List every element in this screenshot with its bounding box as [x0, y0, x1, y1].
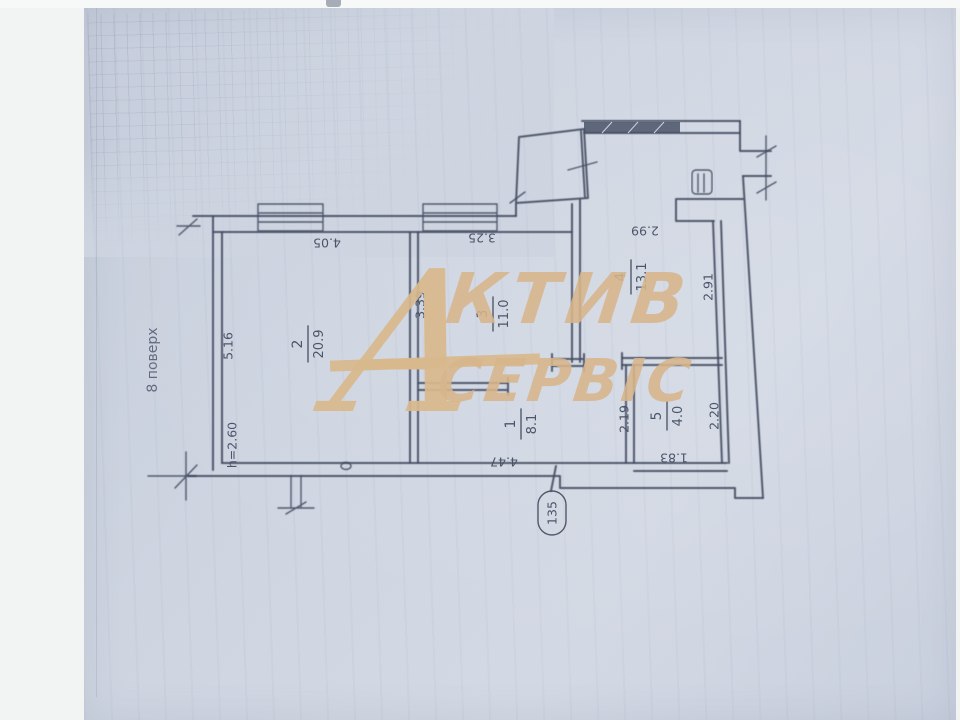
room-1-number: 1: [503, 420, 519, 429]
dim-room5-right: 2.20: [706, 402, 721, 430]
dim-room5-bottom: 1.83: [660, 451, 688, 466]
vent-shaft-icon: [692, 170, 712, 194]
ceiling-height-note: h=2.60: [224, 422, 239, 468]
room-2-label: 2 20.9: [290, 326, 327, 362]
dim-room2-left: 5.16: [220, 332, 235, 360]
room-2-number: 2: [290, 340, 306, 349]
windows-group: [258, 204, 497, 231]
dim-room4-top: 2.99: [631, 224, 659, 239]
hatched-window-band: [584, 122, 680, 133]
watermark-line1: КТИВ: [442, 258, 697, 340]
room-2-area: 20.9: [312, 330, 327, 359]
dim-room1-bottom: 4.47: [490, 455, 518, 470]
apartment-number: 135: [544, 501, 559, 525]
room-1-area: 8.1: [525, 414, 540, 435]
dim-room4-right: 2.91: [700, 273, 715, 301]
floor-note: 8 поверх: [145, 327, 161, 392]
watermark-line2: СЕРВІС: [434, 346, 698, 415]
dim-room2-top: 4.05: [313, 236, 341, 251]
floor-plan-photo: 2 20.9 3 11.0 4 13.1 1 8.1 5 4.0 4.05 3.…: [0, 0, 960, 720]
